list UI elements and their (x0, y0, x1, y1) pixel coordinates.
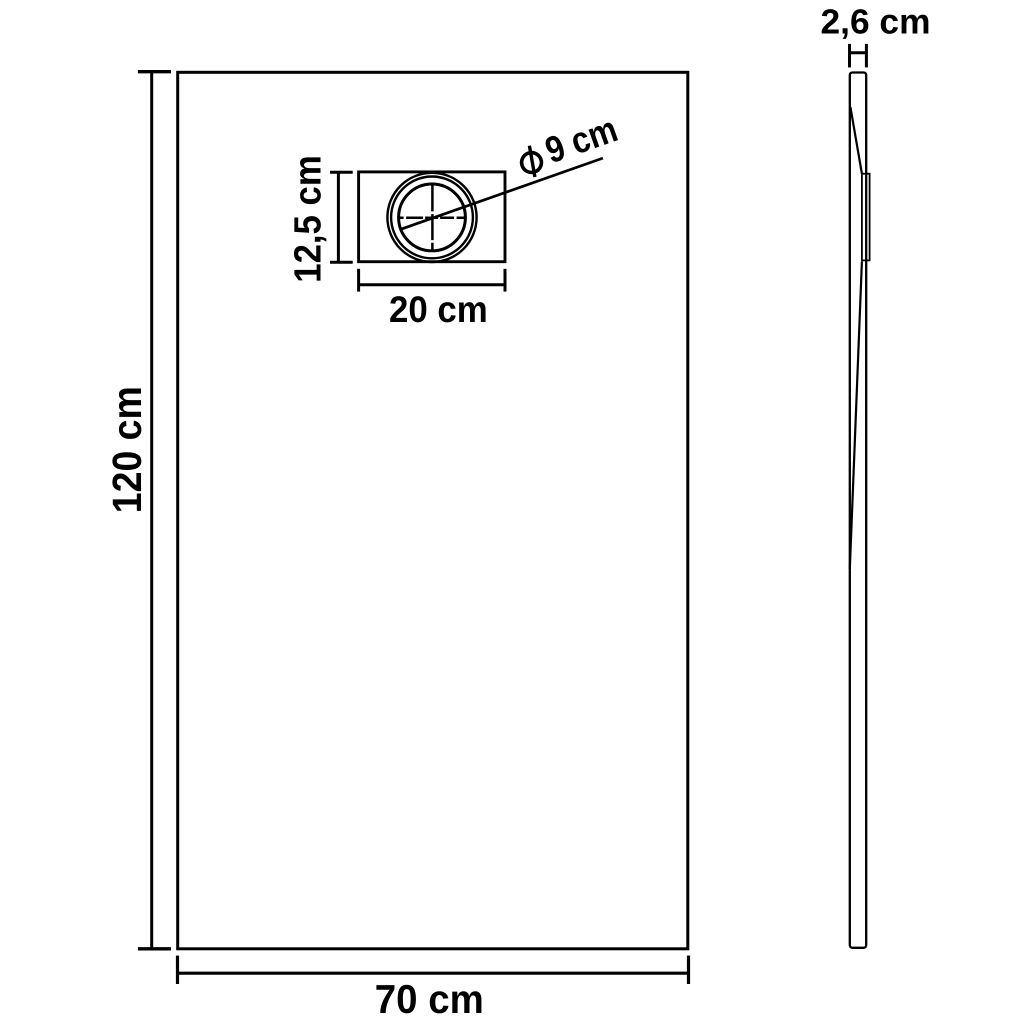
svg-text:20 cm: 20 cm (389, 289, 488, 330)
svg-text:120 cm: 120 cm (104, 386, 150, 513)
svg-text:12,5 cm: 12,5 cm (288, 155, 330, 283)
svg-text:70 cm: 70 cm (375, 976, 484, 1022)
svg-text:2,6 cm: 2,6 cm (821, 3, 931, 42)
